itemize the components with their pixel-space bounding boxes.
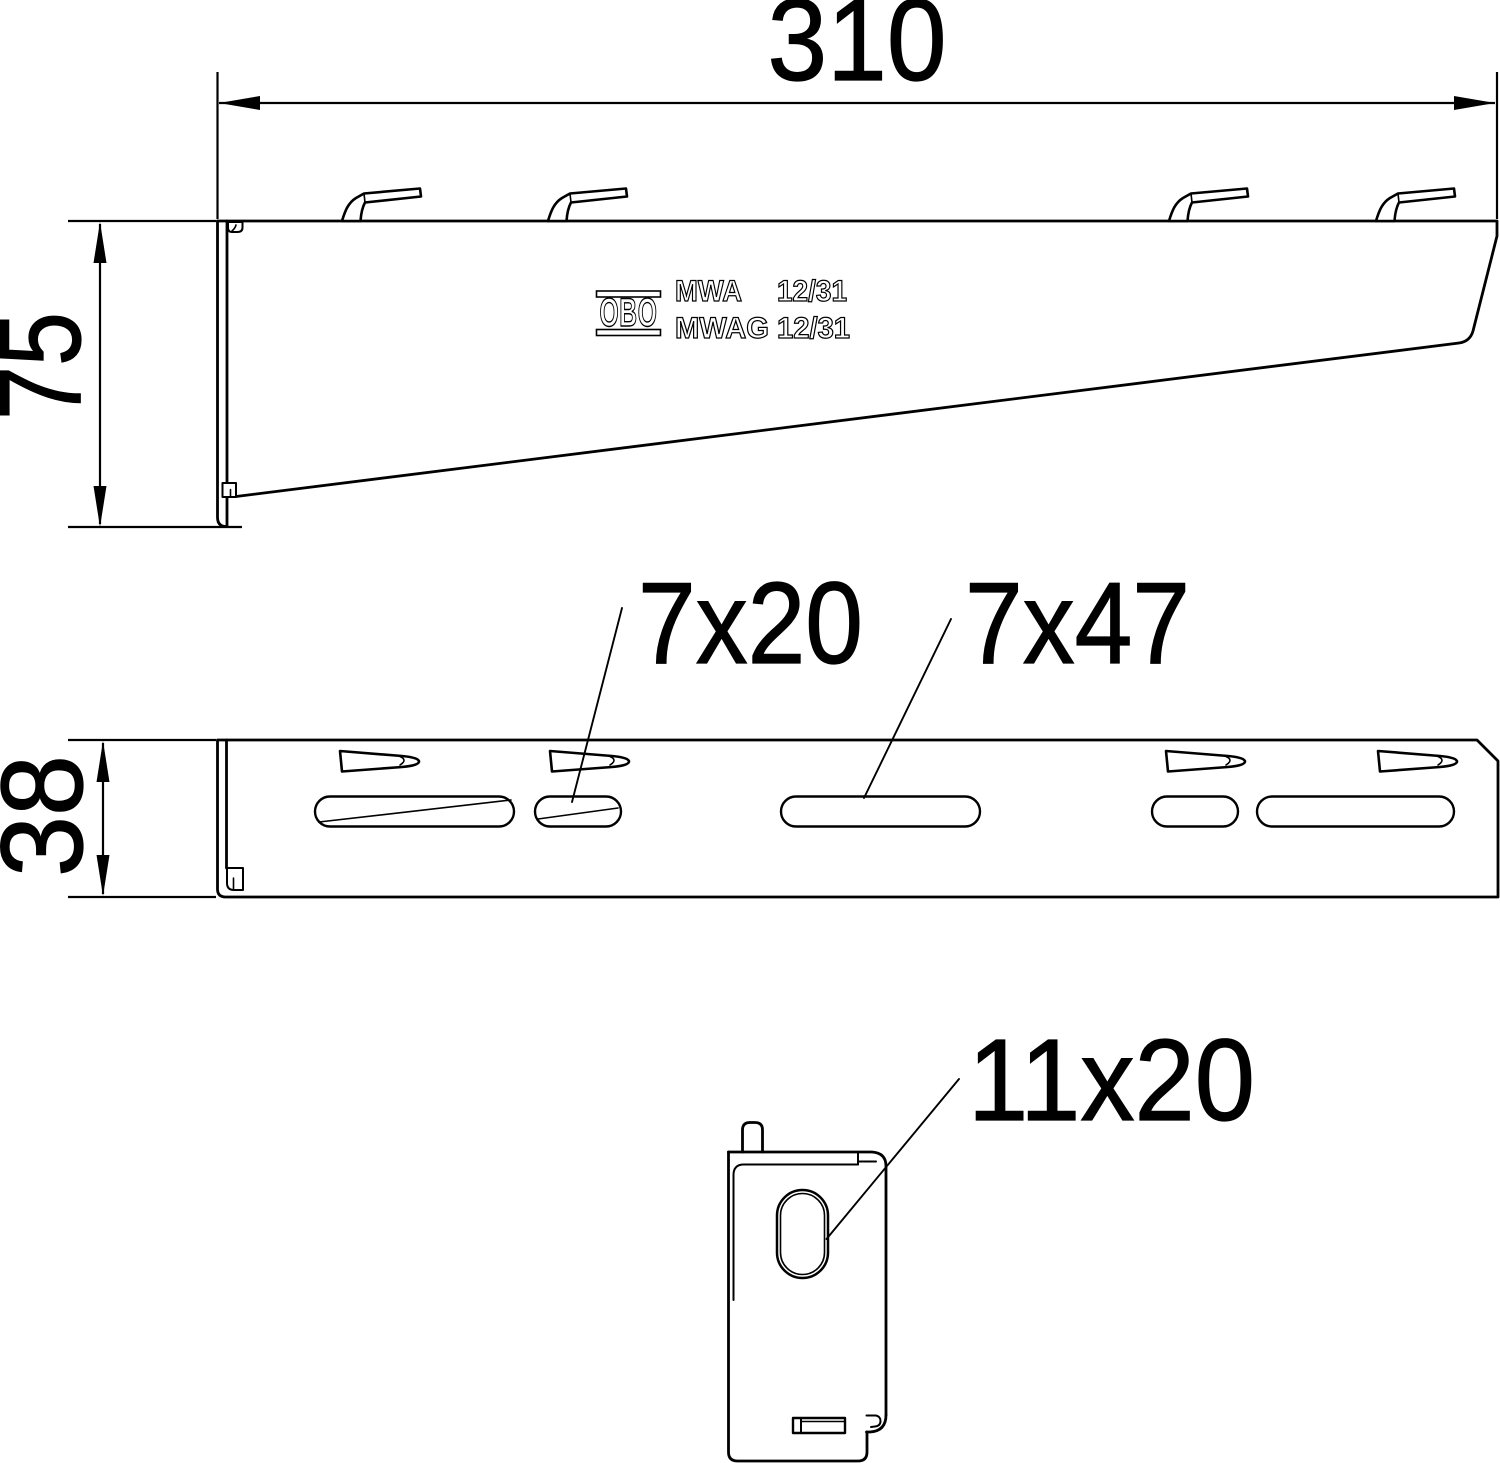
- hook-blade-cap: [1398, 194, 1399, 203]
- callout-7x47-label: 7x47: [965, 558, 1190, 688]
- hook-blade-cap: [364, 194, 365, 203]
- hook-blade-cap: [570, 194, 571, 203]
- stamp-size-a: 12/31: [777, 275, 847, 308]
- technical-drawing-page: 310 75: [0, 0, 1500, 1463]
- stamp-model-a: MWA: [675, 275, 742, 308]
- callout-11x20-label: 11x20: [968, 1015, 1255, 1145]
- slot-7x47: [781, 797, 980, 827]
- dim-75-label: 75: [0, 312, 105, 420]
- obo-logo-text: OBO: [600, 291, 658, 335]
- hook-blade-cap: [1191, 194, 1192, 203]
- dim-310-label: 310: [768, 0, 947, 105]
- stamp-model-b: MWAG 12/31: [675, 312, 850, 345]
- callout-7x20-label: 7x20: [638, 558, 863, 688]
- slot-7x20: [535, 797, 621, 827]
- paper-background: [0, 0, 1500, 1463]
- slot-7x20: [1152, 797, 1238, 827]
- wall-bottom-tab: [223, 483, 237, 497]
- dim-38-label: 38: [0, 755, 107, 877]
- plate-left-tab: [227, 868, 243, 890]
- slots: [315, 797, 1454, 827]
- bracket-drawing: 310 75: [0, 0, 1500, 1463]
- slot-7x47: [1257, 797, 1454, 827]
